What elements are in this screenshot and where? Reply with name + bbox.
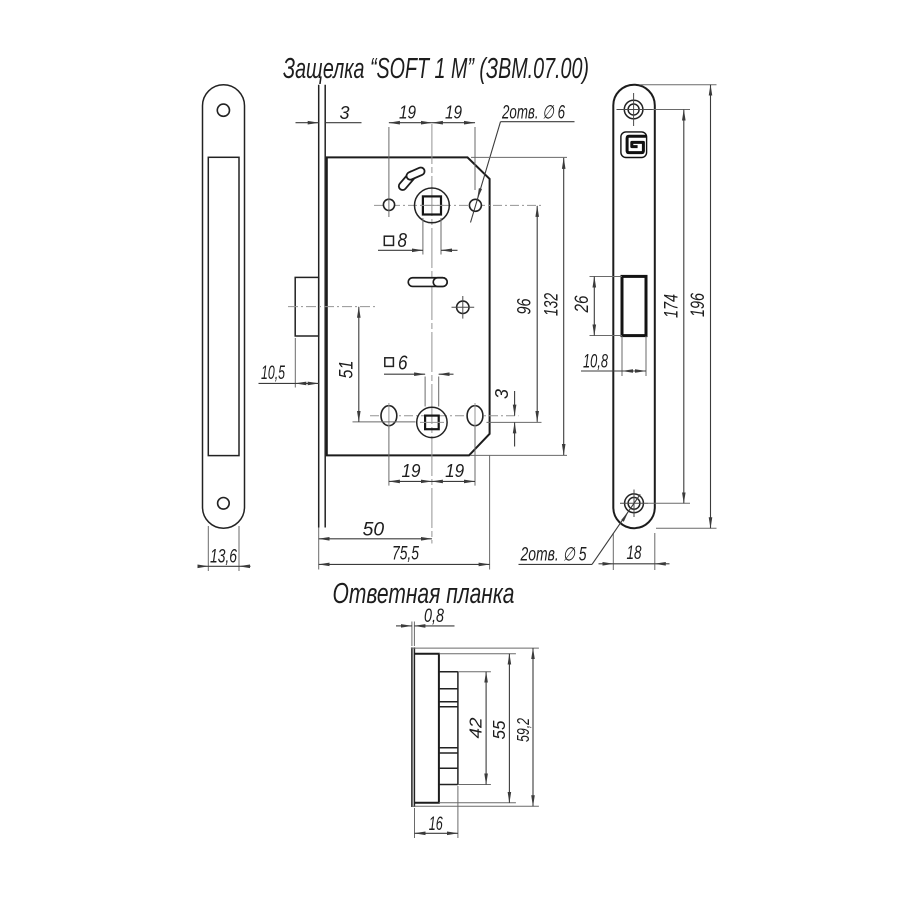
svg-text:Защелка “SOFT 1 M” (ЗВМ.07.00): Защелка “SOFT 1 M” (ЗВМ.07.00) — [283, 53, 589, 85]
svg-text:10,8: 10,8 — [583, 351, 608, 372]
svg-text:26: 26 — [572, 295, 593, 313]
svg-text:96: 96 — [515, 298, 536, 314]
svg-text:8: 8 — [398, 230, 408, 252]
svg-text:2отв. ∅ 6: 2отв. ∅ 6 — [501, 103, 565, 124]
svg-text:13,6: 13,6 — [210, 547, 237, 568]
svg-text:75,5: 75,5 — [392, 544, 419, 565]
svg-text:59,2: 59,2 — [513, 718, 533, 742]
svg-text:51: 51 — [337, 361, 358, 379]
svg-text:50: 50 — [363, 520, 385, 541]
svg-text:19: 19 — [399, 103, 416, 123]
svg-text:3: 3 — [339, 103, 349, 123]
svg-text:3: 3 — [492, 389, 512, 399]
svg-text:6: 6 — [398, 353, 408, 375]
svg-text:196: 196 — [688, 293, 709, 317]
svg-text:16: 16 — [429, 814, 443, 835]
svg-text:18: 18 — [627, 543, 642, 564]
svg-text:19: 19 — [445, 103, 462, 123]
svg-text:19: 19 — [402, 461, 421, 481]
svg-text:174: 174 — [662, 294, 683, 318]
svg-text:Ответная планка: Ответная планка — [333, 578, 515, 610]
svg-text:19: 19 — [445, 461, 464, 481]
svg-text:10,5: 10,5 — [261, 363, 285, 384]
svg-text:55: 55 — [489, 720, 509, 739]
svg-text:42: 42 — [466, 717, 486, 738]
svg-text:2отв. ∅ 5: 2отв. ∅ 5 — [520, 545, 587, 566]
svg-text:132: 132 — [542, 293, 563, 316]
